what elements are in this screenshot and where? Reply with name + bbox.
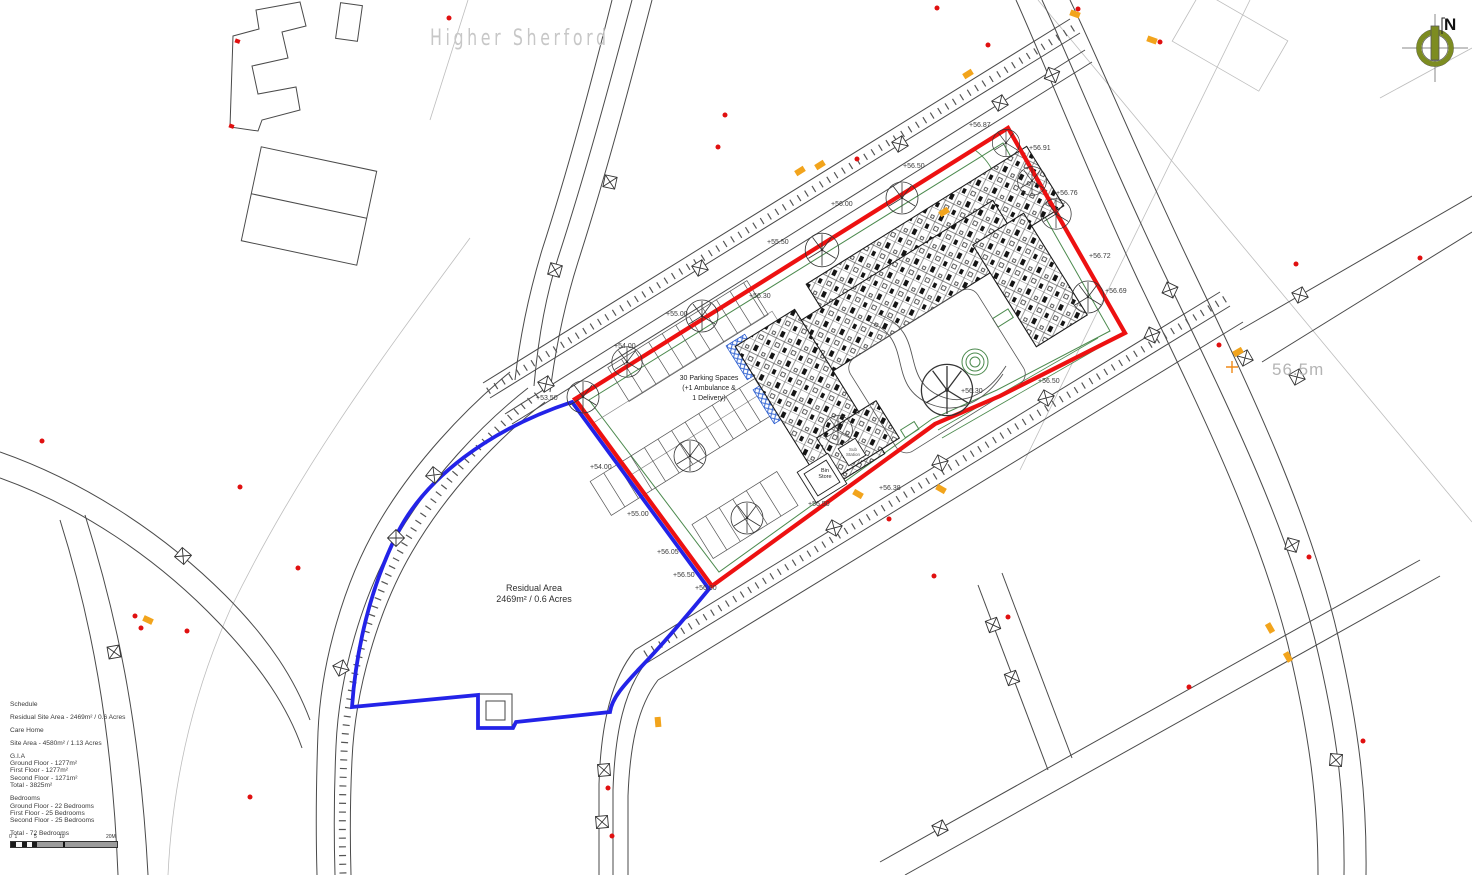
boundary-structure (479, 694, 512, 727)
marker-symbols (107, 67, 1342, 836)
north-arrow-icon: N (1402, 14, 1468, 82)
site-plan-canvas: N Higher Sherford 56.5m Residual Area 24… (0, 0, 1472, 875)
blue-residual-boundary (352, 402, 709, 728)
site-plan-svg: N (0, 0, 1472, 875)
existing-buildings (230, 2, 377, 265)
survey-points (40, 6, 1423, 839)
north-label: N (1444, 15, 1456, 34)
